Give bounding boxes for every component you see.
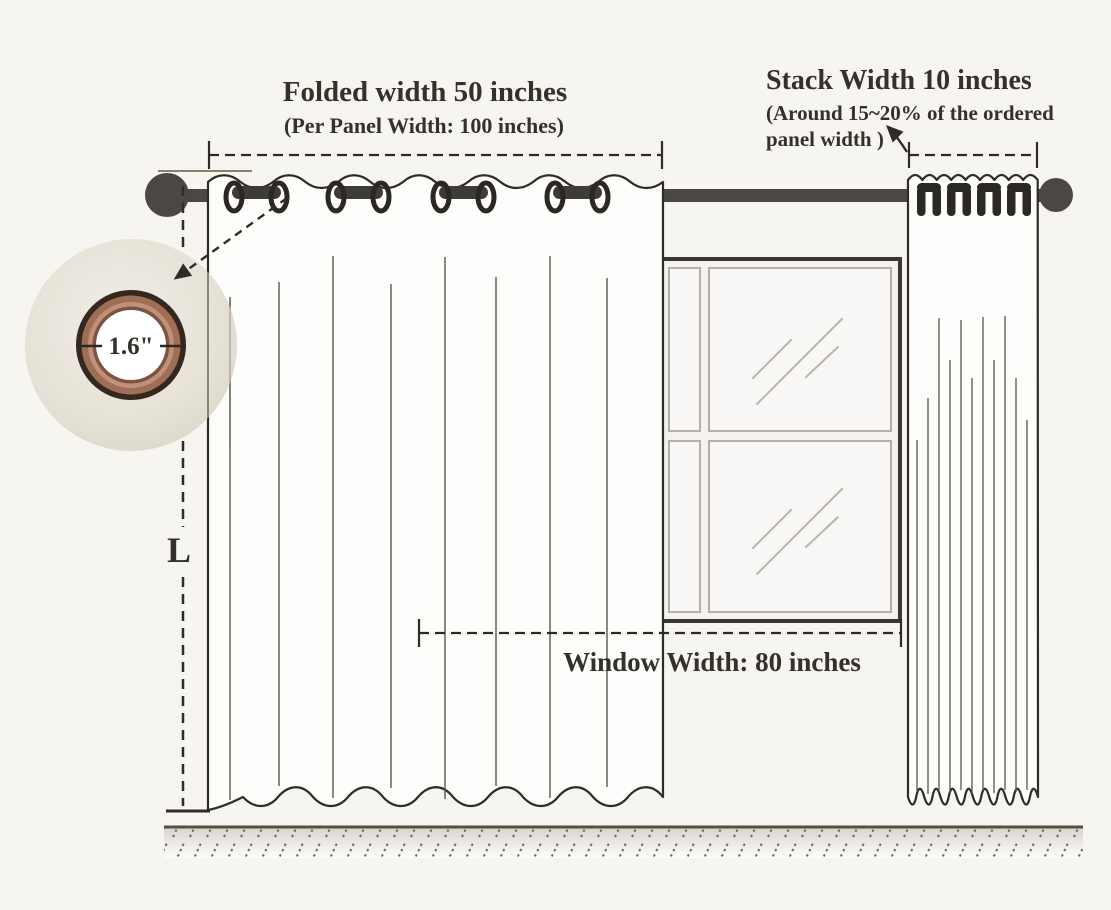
window-pane <box>669 441 700 612</box>
window-pane <box>709 268 891 431</box>
folded-width-title: Folded width 50 inches <box>283 76 567 108</box>
curtain-measurement-diagram: Folded width 50 inches (Per Panel Width:… <box>0 0 1111 910</box>
stack-width-subtitle-line2: panel width ) <box>766 127 884 151</box>
stack-width-subtitle-line1: (Around 15~20% of the ordered <box>766 101 1054 125</box>
rod-finial-right <box>1039 178 1073 212</box>
stack-width-title: Stack Width 10 inches <box>766 65 1032 96</box>
window <box>663 259 901 621</box>
window-pane <box>669 268 700 431</box>
window-pane <box>709 441 891 612</box>
floor-hatching <box>164 828 1083 858</box>
folded-width-subtitle: (Per Panel Width: 100 inches) <box>284 113 564 138</box>
main-curtain-fabric <box>208 175 663 810</box>
length-label: L <box>167 530 191 570</box>
stacked-curtain-panel <box>908 175 1038 805</box>
window-width-label: Window Width: 80 inches <box>563 647 861 677</box>
main-curtain-panel <box>208 175 663 810</box>
grommet-diameter-label: 1.6" <box>108 333 153 360</box>
floor <box>164 827 1083 858</box>
diagram-canvas: Folded width 50 inches (Per Panel Width:… <box>0 0 1111 910</box>
